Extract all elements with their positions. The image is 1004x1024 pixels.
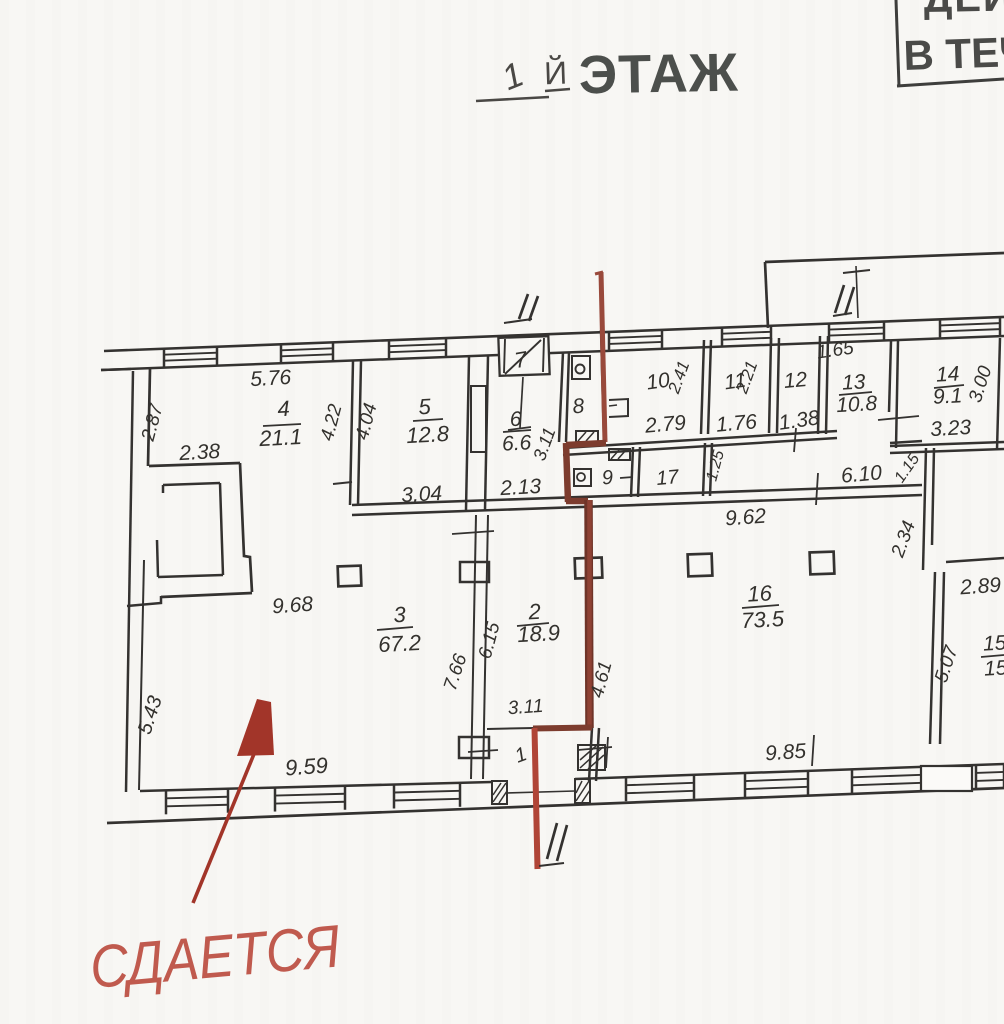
svg-text:9.85: 9.85 — [764, 740, 807, 766]
svg-text:3: 3 — [393, 602, 407, 628]
svg-text:13: 13 — [841, 370, 866, 394]
svg-text:2.79: 2.79 — [643, 411, 687, 438]
svg-text:9.68: 9.68 — [271, 593, 314, 619]
svg-text:3.23: 3.23 — [930, 416, 972, 441]
svg-text:5: 5 — [418, 394, 432, 420]
svg-text:18.9: 18.9 — [517, 620, 561, 647]
svg-text:Й: Й — [543, 55, 567, 92]
svg-text:21.1: 21.1 — [258, 424, 303, 451]
svg-text:10.8: 10.8 — [836, 392, 878, 417]
svg-text:8: 8 — [572, 395, 586, 419]
svg-text:17: 17 — [655, 466, 680, 490]
svg-text:1.76: 1.76 — [715, 410, 758, 437]
svg-text:12.8: 12.8 — [406, 421, 451, 448]
svg-text:15: 15 — [982, 631, 1004, 655]
svg-text:2.38: 2.38 — [178, 440, 221, 465]
svg-text:12: 12 — [783, 368, 809, 393]
svg-text:2.89: 2.89 — [958, 574, 1002, 600]
svg-text:ДЕЙСТВ: ДЕЙСТВ — [923, 0, 1004, 21]
svg-text:9.62: 9.62 — [724, 505, 767, 531]
svg-text:2.13: 2.13 — [499, 475, 542, 500]
svg-text:5.76: 5.76 — [250, 366, 292, 391]
svg-text:67.2: 67.2 — [378, 630, 422, 657]
svg-text:4: 4 — [277, 396, 291, 422]
svg-text:6.10: 6.10 — [840, 461, 883, 488]
svg-text:14: 14 — [935, 362, 960, 386]
svg-text:9.59: 9.59 — [284, 753, 328, 781]
svg-text:16: 16 — [747, 580, 774, 606]
svg-text:73.5: 73.5 — [741, 606, 786, 633]
svg-text:3.11: 3.11 — [507, 696, 544, 719]
svg-text:15: 15 — [983, 656, 1004, 680]
svg-text:3.04: 3.04 — [401, 482, 443, 507]
svg-text:6: 6 — [509, 408, 522, 432]
svg-text:ЭТАЖ: ЭТАЖ — [578, 43, 739, 106]
svg-text:В ТЕЧЕНИЕ: В ТЕЧЕНИЕ — [903, 24, 1004, 79]
svg-text:9.1: 9.1 — [932, 384, 962, 408]
svg-text:6.6: 6.6 — [501, 431, 532, 456]
svg-text:9: 9 — [601, 467, 614, 490]
